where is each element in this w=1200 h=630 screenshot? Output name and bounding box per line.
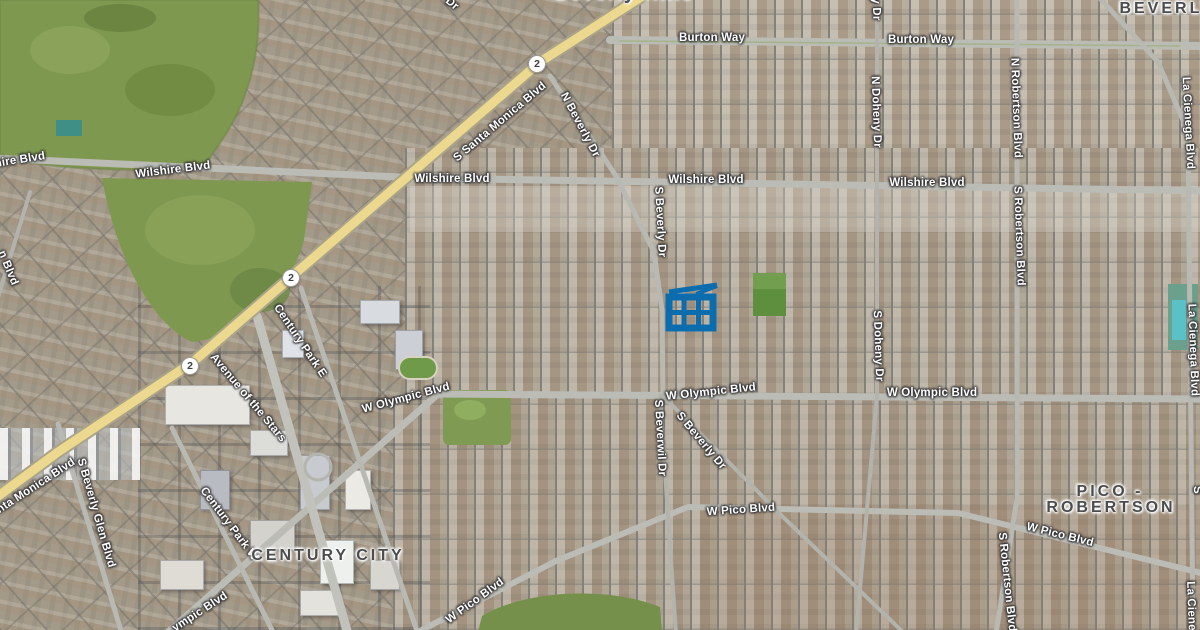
roads-layer xyxy=(0,0,1200,630)
building-footprint-icon[interactable] xyxy=(660,278,718,332)
satellite-map[interactable]: hire BlvdWilshire BlvdWilshire BlvdWilsh… xyxy=(0,0,1200,630)
